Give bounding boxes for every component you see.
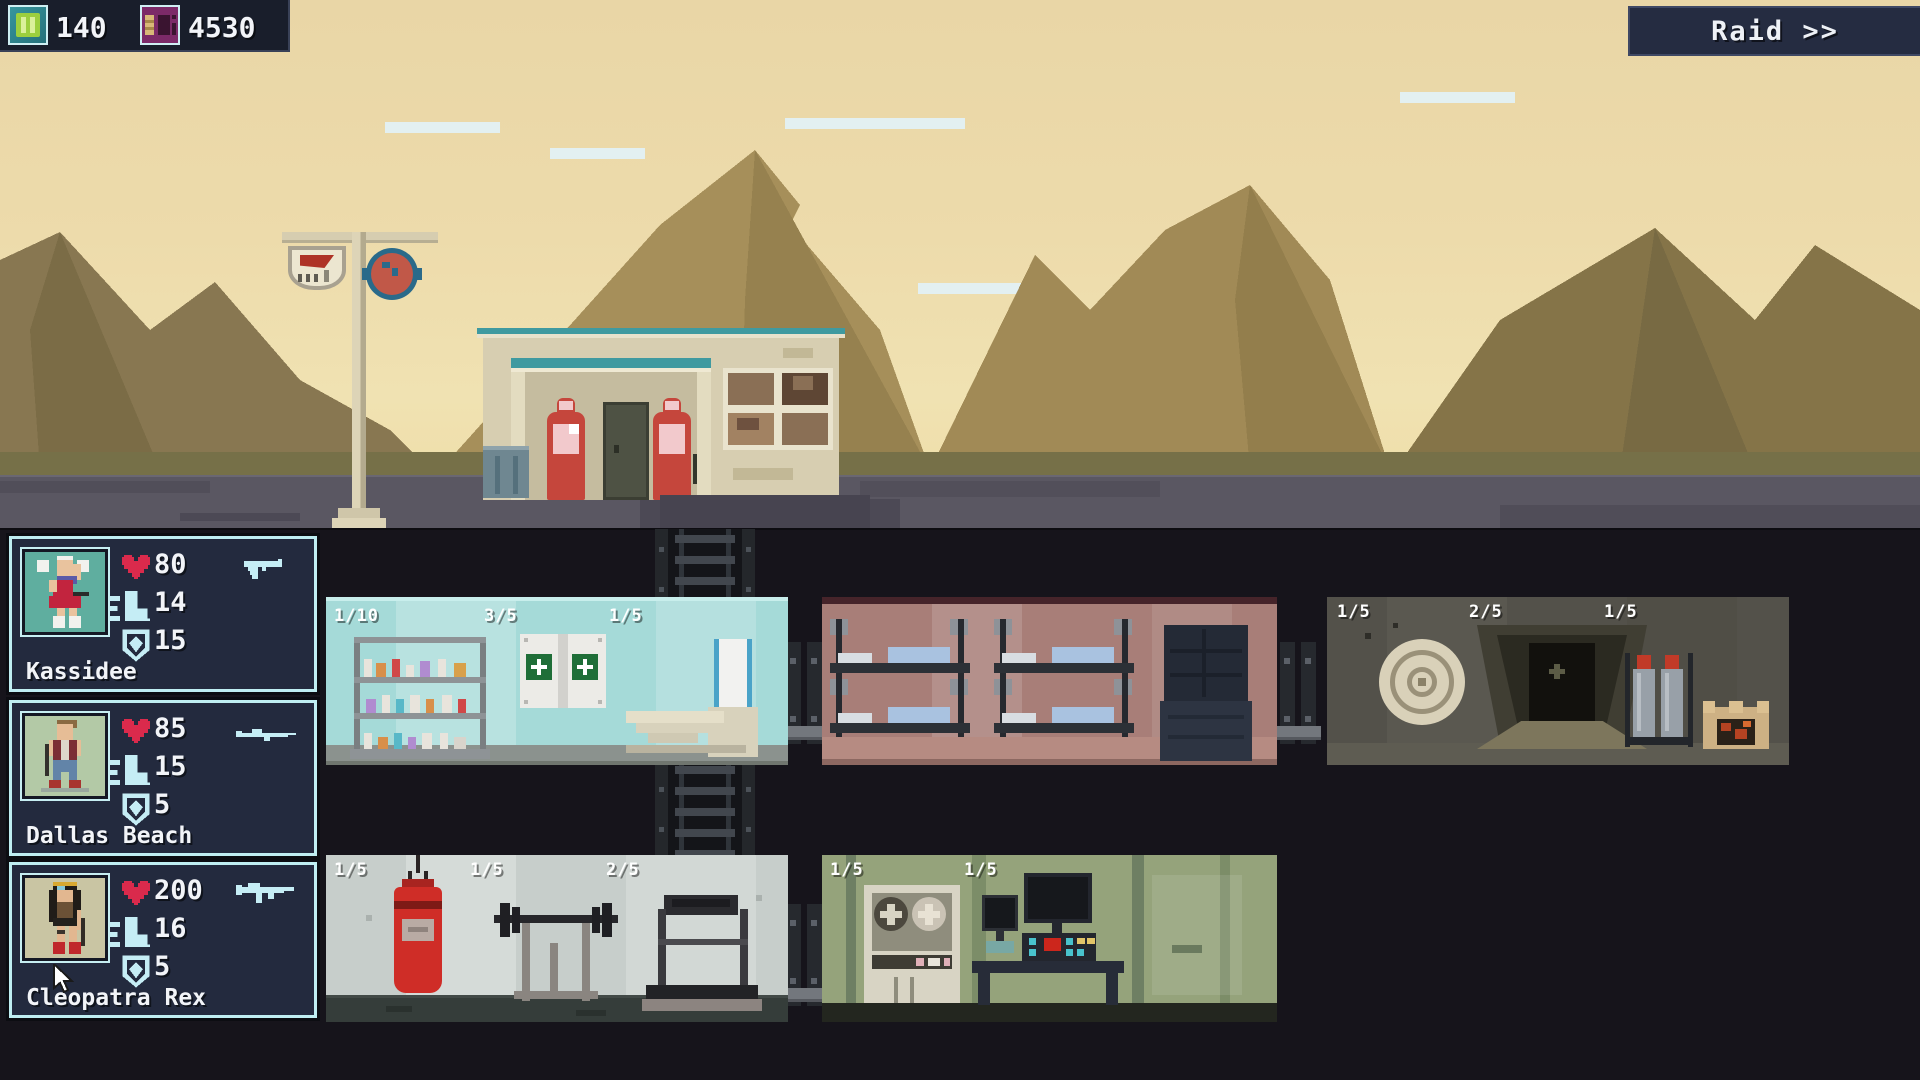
speed-icon <box>110 591 150 626</box>
canister-rack[interactable] <box>1625 653 1693 747</box>
control-desk[interactable] <box>972 873 1124 1005</box>
gas-pump <box>547 398 585 500</box>
room-connector <box>1280 642 1316 744</box>
resource-bar: 140 4530 <box>0 0 290 52</box>
barbell-rack[interactable] <box>494 903 618 1007</box>
round-sign <box>366 248 418 300</box>
capacity-label: 1/5 <box>1604 602 1638 622</box>
health-icon <box>122 555 150 579</box>
capacity-label: 3/5 <box>484 606 518 626</box>
character-name: Kassidee <box>26 659 137 685</box>
room-connector <box>786 904 822 1006</box>
tunnel-opening[interactable] <box>1477 625 1647 749</box>
medicine-cabinet[interactable] <box>520 634 606 708</box>
health-icon <box>122 719 150 743</box>
pistol-icon <box>236 557 296 581</box>
room-connector <box>786 642 822 744</box>
practice-target[interactable] <box>1379 639 1465 725</box>
speed-icon <box>110 917 150 952</box>
room-computer[interactable]: 1/5 1/5 <box>822 855 1277 1022</box>
treadmill[interactable] <box>646 895 764 1011</box>
station-porch <box>511 358 711 500</box>
station-shadow <box>660 495 870 528</box>
wardrobe[interactable] <box>1160 625 1252 761</box>
speed-value: 14 <box>154 589 187 616</box>
medical-bed[interactable] <box>626 639 762 759</box>
bunk-bed[interactable] <box>994 619 1134 737</box>
bunk-bed[interactable] <box>830 619 970 737</box>
character-portrait <box>22 713 108 799</box>
scrap-icon <box>140 5 180 45</box>
defense-value: 5 <box>154 791 170 818</box>
energy-icon <box>8 5 48 45</box>
shield-sign <box>288 246 346 290</box>
raid-button[interactable]: Raid >> <box>1628 6 1920 56</box>
capacity-label: 1/5 <box>964 860 998 880</box>
capacity-label: 1/10 <box>334 606 379 626</box>
gas-station <box>483 328 839 500</box>
character-portrait <box>22 549 108 635</box>
station-door <box>603 402 649 500</box>
room-bunks[interactable] <box>822 597 1277 765</box>
capacity-label: 1/5 <box>470 860 504 880</box>
character-panel-dallas-beach[interactable]: 85 15 5 Dallas Beach <box>9 700 317 856</box>
punching-bag[interactable] <box>394 855 442 997</box>
defense-value: 15 <box>154 627 187 654</box>
defense-value: 5 <box>154 953 170 980</box>
explosives-crate[interactable] <box>1703 701 1769 749</box>
health-value: 200 <box>154 877 203 904</box>
tape-computer[interactable] <box>864 885 960 1003</box>
gas-pump <box>653 398 691 500</box>
game-screen: 1/10 3/5 1/5 <box>0 0 1920 1080</box>
mouse-cursor <box>52 964 76 996</box>
capacity-label: 2/5 <box>1469 602 1503 622</box>
speed-icon <box>110 755 150 790</box>
capacity-label: 1/5 <box>609 606 643 626</box>
character-name: Dallas Beach <box>26 823 192 849</box>
smg-icon <box>236 879 296 907</box>
capacity-label: 1/5 <box>334 860 368 880</box>
scrap-value: 4530 <box>188 11 255 44</box>
energy-value: 140 <box>56 11 107 44</box>
gas-station-sign <box>282 226 438 526</box>
character-portrait <box>22 875 108 961</box>
health-value: 85 <box>154 715 187 742</box>
health-value: 80 <box>154 551 187 578</box>
speed-value: 15 <box>154 753 187 780</box>
health-icon <box>122 881 150 905</box>
rifle-icon <box>236 725 296 749</box>
character-panel-kassidee[interactable]: 80 14 15 Kassidee <box>9 536 317 692</box>
capacity-label: 1/5 <box>1337 602 1371 622</box>
medicine-shelf[interactable] <box>354 637 486 759</box>
room-medical[interactable]: 1/10 3/5 1/5 <box>326 597 788 765</box>
capacity-label: 1/5 <box>830 860 864 880</box>
speed-value: 16 <box>154 915 187 942</box>
room-tunnel[interactable]: 1/5 2/5 1/5 <box>1327 597 1789 765</box>
room-gym[interactable]: 1/5 1/5 2/5 <box>326 855 788 1022</box>
capacity-label: 2/5 <box>606 860 640 880</box>
station-window-right <box>723 368 833 450</box>
station-window-left <box>483 446 529 498</box>
